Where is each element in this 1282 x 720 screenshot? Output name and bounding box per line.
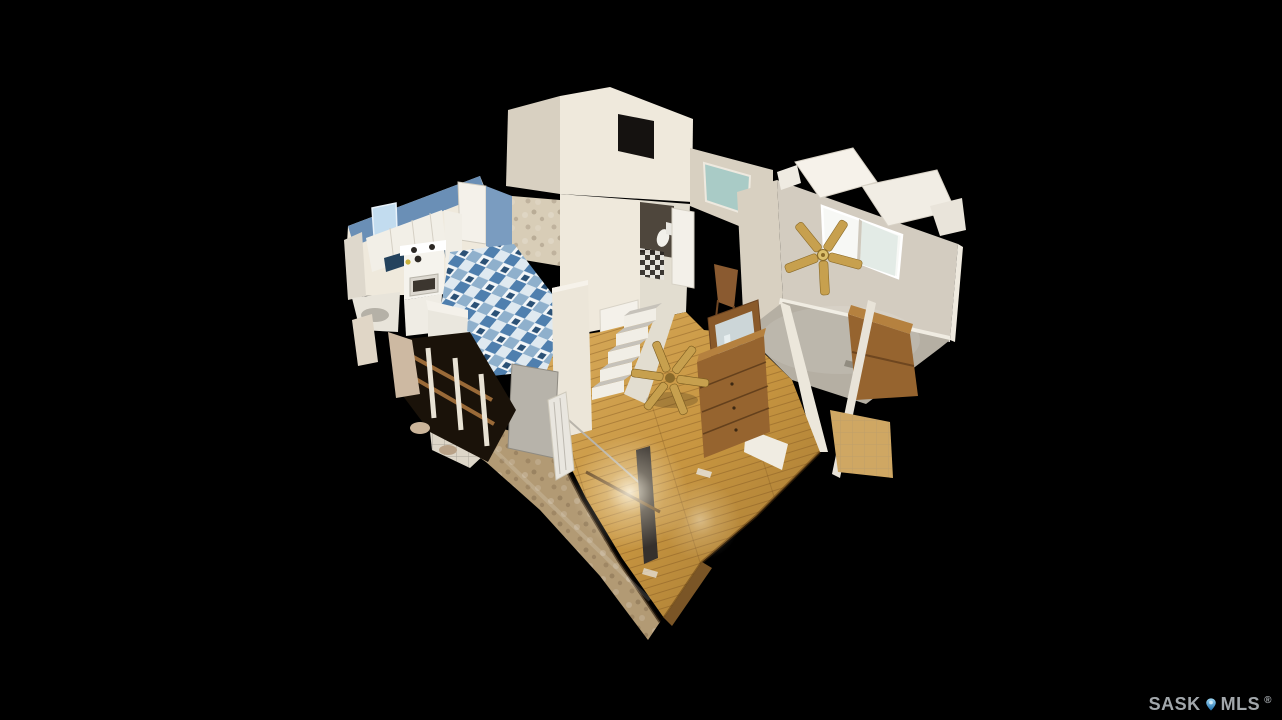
kitchen-door [458, 182, 486, 244]
dresser-with-mirror [697, 300, 770, 458]
watermark-sask: SASK [1149, 694, 1201, 715]
sask-mls-watermark: SASK MLS ® [1149, 694, 1272, 715]
hall-door [672, 208, 694, 288]
registered-trademark: ® [1264, 695, 1272, 706]
watermark-mls: MLS [1221, 694, 1261, 715]
map-pin-icon [1204, 696, 1218, 713]
viewer-stage: SASK MLS ® [0, 0, 1282, 720]
stove [400, 240, 446, 300]
checkered-bath-floor [640, 248, 664, 280]
dollhouse-3d-view[interactable] [0, 0, 1282, 720]
